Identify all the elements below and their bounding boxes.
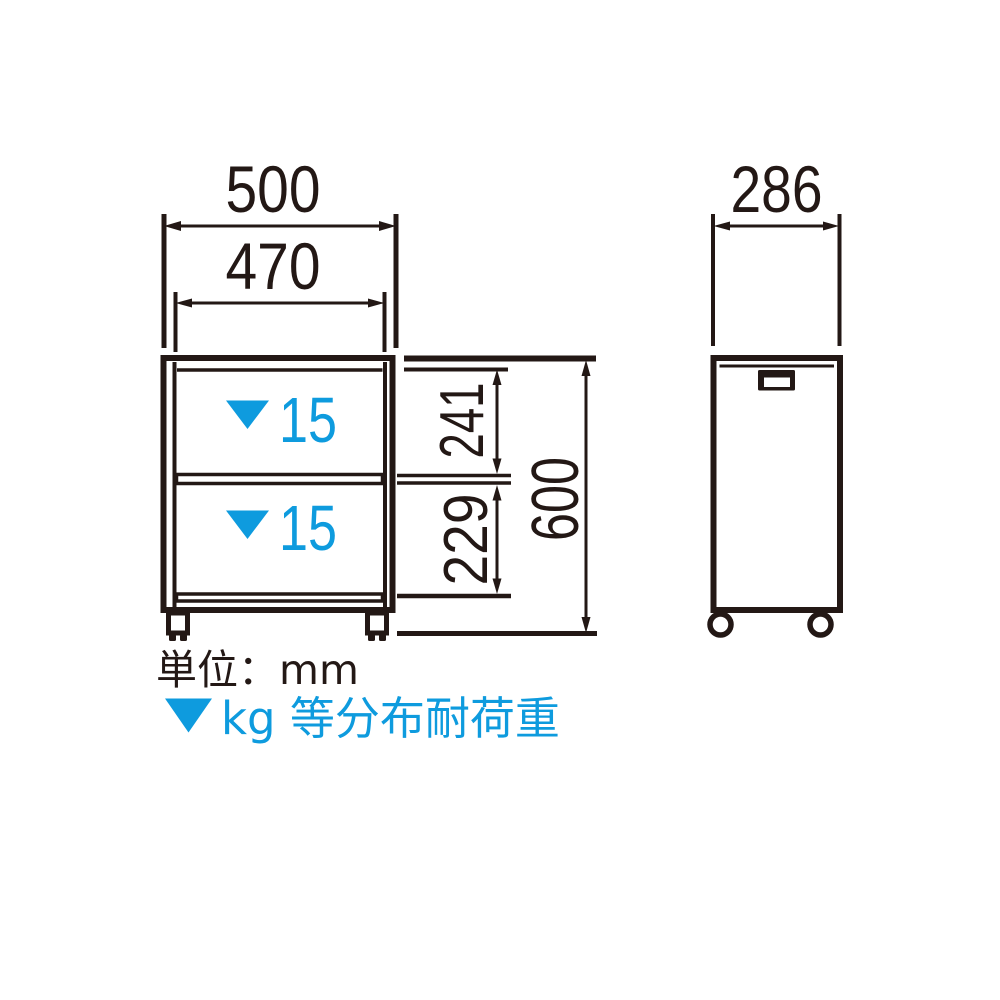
front-left-caster — [169, 613, 188, 641]
lower-shelf-load-value: 15 — [279, 492, 337, 564]
overall-height-dimension: 600 — [518, 360, 593, 633]
middle-shelf — [177, 475, 383, 484]
arrowhead-left-icon — [714, 222, 731, 231]
caster-wheel-icon — [368, 635, 375, 642]
load-triangle-icon — [165, 699, 212, 733]
caster-bracket — [368, 613, 387, 633]
load-triangle-icon — [226, 401, 269, 430]
cabinet-outline — [714, 358, 841, 610]
dimension-diagram: 500 470 — [0, 0, 1000, 1000]
handle-slot — [764, 378, 790, 388]
upper-shelf-load-value: 15 — [279, 384, 337, 456]
caster-wheel-icon — [180, 635, 187, 642]
arrowhead-right-icon — [368, 299, 385, 308]
front-outer-width-value: 500 — [226, 152, 321, 226]
side-cabinet-body — [710, 358, 840, 635]
arrowhead-left-icon — [164, 221, 181, 231]
caster-wheel-icon — [379, 635, 386, 642]
upper-shelf-load-label: 15 — [226, 384, 337, 456]
lower-compartment-height-dimension: 229 — [432, 485, 502, 594]
upper-compartment-height-dimension: 241 — [428, 370, 502, 475]
lower-shelf-load-label: 15 — [226, 492, 337, 564]
load-triangle-icon — [226, 511, 269, 540]
unit-note: 単位：mm — [156, 646, 359, 694]
front-cabinet-body — [164, 358, 393, 641]
side-view: 286 — [710, 152, 840, 635]
arrowhead-right-icon — [379, 221, 396, 231]
front-inner-width-dimension: 470 — [176, 229, 385, 352]
arrowhead-down-icon — [582, 617, 591, 633]
caster-wheel-icon — [810, 614, 831, 635]
front-inner-width-value: 470 — [226, 229, 321, 303]
lower-compartment-height-value: 229 — [432, 494, 501, 586]
front-right-caster — [368, 613, 387, 641]
side-depth-value: 286 — [731, 152, 823, 226]
caster-bracket — [169, 613, 188, 633]
technical-drawing: 500 470 — [0, 0, 1000, 1000]
upper-compartment-height-value: 241 — [428, 383, 497, 459]
bottom-shelf — [177, 594, 383, 601]
overall-height-value: 600 — [518, 457, 593, 541]
arrowhead-right-icon — [823, 222, 839, 231]
arrowhead-down-icon — [493, 459, 502, 475]
legend: 単位：mm kg 等分布耐荷重 — [156, 646, 560, 745]
load-note: kg 等分布耐荷重 — [221, 692, 560, 745]
front-view: 500 470 — [164, 152, 598, 641]
arrowhead-up-icon — [582, 360, 591, 376]
caster-wheel-icon — [710, 614, 731, 635]
caster-wheel-icon — [169, 635, 176, 642]
side-depth-dimension: 286 — [713, 152, 840, 346]
side-handle — [758, 370, 795, 391]
arrowhead-left-icon — [176, 299, 193, 308]
